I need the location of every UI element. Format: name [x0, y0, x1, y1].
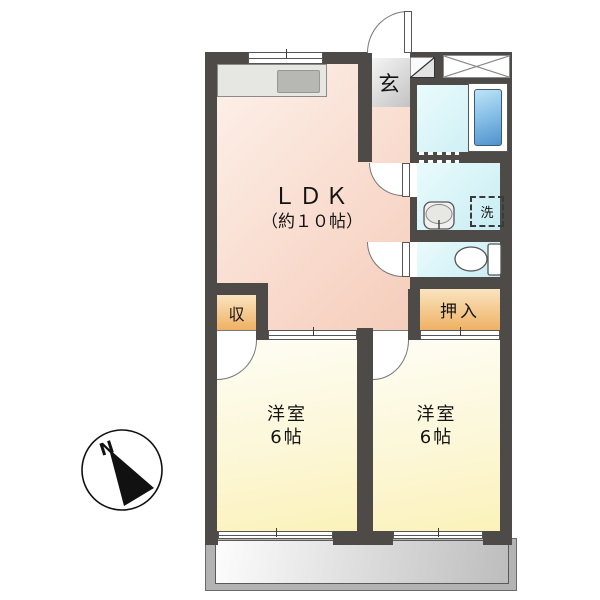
balcony-door-bedroom1 [218, 531, 333, 539]
door-washroom-leaf [402, 163, 410, 197]
storage-x-icon [443, 55, 510, 78]
entrance-label: 玄 [368, 58, 410, 107]
ldk-name: ＬＤＫ [273, 183, 351, 212]
kitchen-sink [277, 70, 320, 93]
wall-oshiire-pillar [408, 289, 420, 340]
wall-bottom-center [333, 531, 393, 545]
doorway-toilet [410, 242, 417, 277]
compass: N [76, 426, 168, 518]
wall-left [205, 52, 217, 545]
bathroom-folding-door [419, 152, 459, 163]
laundry-label: 洗 [480, 202, 493, 221]
washbasin-icon [423, 201, 455, 231]
balcony-deck [215, 540, 509, 584]
toilet-icon [453, 242, 505, 278]
wall-bottom-right [483, 531, 512, 545]
ldk-size: （約１０帖） [261, 212, 363, 233]
wall-closet-top [205, 283, 268, 295]
ldk-label: ＬＤＫ （約１０帖） [222, 180, 402, 236]
wall-toilet-oshiire [410, 277, 512, 289]
sliding-door-ldk-bedroom1 [268, 330, 357, 340]
bedroom2-label: 洋室 6帖 [373, 398, 500, 454]
door-entrance-leaf [404, 11, 412, 53]
closet-label: 収 [217, 295, 256, 330]
doorway-washroom [410, 163, 417, 197]
balcony-door-bedroom2 [393, 531, 483, 539]
wall-bottom-left [205, 531, 218, 545]
bedroom2-size: 6帖 [420, 426, 453, 449]
bedroom2-name: 洋室 [417, 403, 457, 426]
kitchen-window [248, 52, 323, 64]
bedroom1-label: 洋室 6帖 [217, 398, 357, 454]
oshiire-label: 押入 [420, 289, 500, 330]
door-toilet-leaf [402, 242, 410, 277]
wall-washroom-toilet [410, 230, 512, 242]
sliding-door-oshiire [420, 330, 500, 340]
shoe-cabinet-icon [410, 57, 435, 78]
wall-hall-washroom [410, 196, 417, 230]
laundry-area: 洗 [470, 196, 504, 227]
floor-plan: 洗 玄 ＬＤＫ （約１０帖） 収 押入 洋室 6帖 洋室 6帖 [0, 0, 600, 600]
door-entrance-arc [367, 11, 408, 53]
wall-closet-right [256, 295, 268, 340]
wall-bedroom-divider [357, 328, 373, 545]
bedroom1-name: 洋室 [267, 403, 307, 426]
bedroom1-size: 6帖 [270, 426, 303, 449]
bathtub [474, 89, 502, 146]
